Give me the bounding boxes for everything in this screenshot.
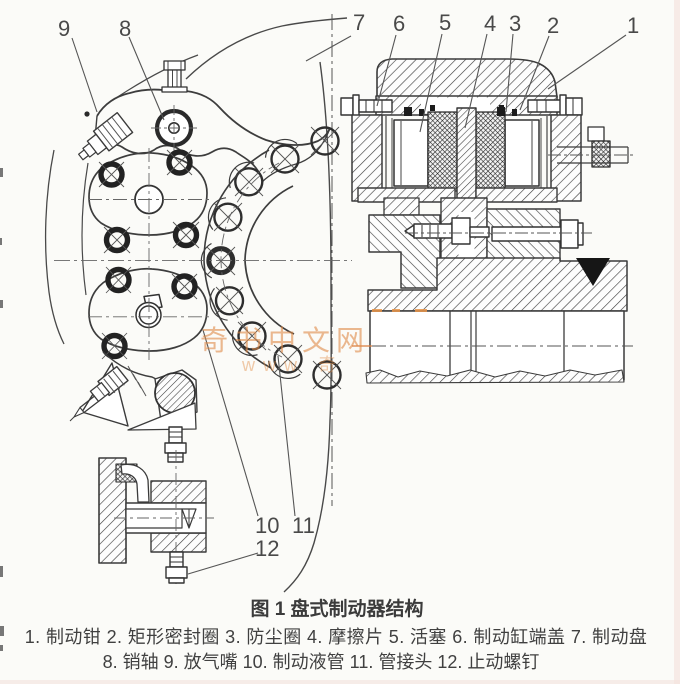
svg-text:6: 6 [393,11,405,36]
svg-text:9: 9 [58,16,70,41]
svg-text:3: 3 [509,11,521,36]
svg-text:1: 1 [627,13,639,38]
svg-text:1. 制动钳 2. 矩形密封圈 3. 防尘圈 4. 摩: 1. 制动钳 2. 矩形密封圈 3. 防尘圈 4. 摩擦片 5. 活塞 6. 制… [25,626,648,647]
svg-text:5: 5 [439,10,451,35]
svg-text:8. 销轴 9. 放气嘴 10. 制动液管 11. 管: 8. 销轴 9. 放气嘴 10. 制动液管 11. 管接头 12. 止动螺钉 [103,652,540,672]
svg-text:7: 7 [353,10,365,35]
svg-text:2: 2 [547,13,559,38]
svg-text:8: 8 [119,16,131,41]
svg-text:10: 10 [255,513,279,538]
svg-text:11: 11 [292,513,315,538]
svg-text:www 奇: www 奇 [241,355,344,375]
svg-text:4: 4 [484,11,496,36]
svg-text:12: 12 [255,536,279,561]
svg-text:图 1 盘式制动器结构: 图 1 盘式制动器结构 [250,597,423,620]
svg-text:奇书中文网: 奇书中文网 [200,325,370,356]
